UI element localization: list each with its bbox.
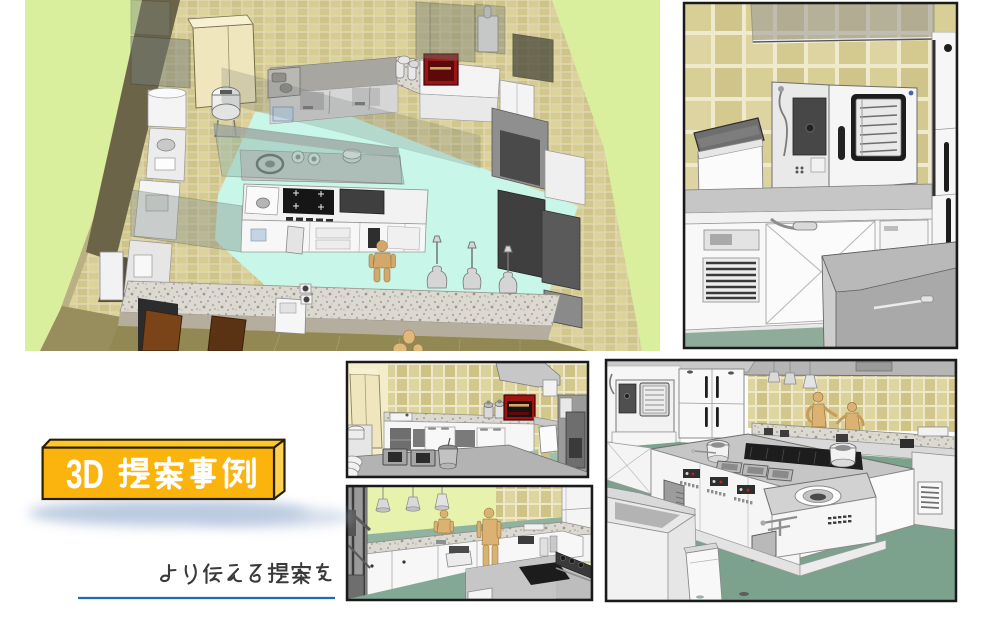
svg-text:3D: 3D: [66, 451, 104, 497]
